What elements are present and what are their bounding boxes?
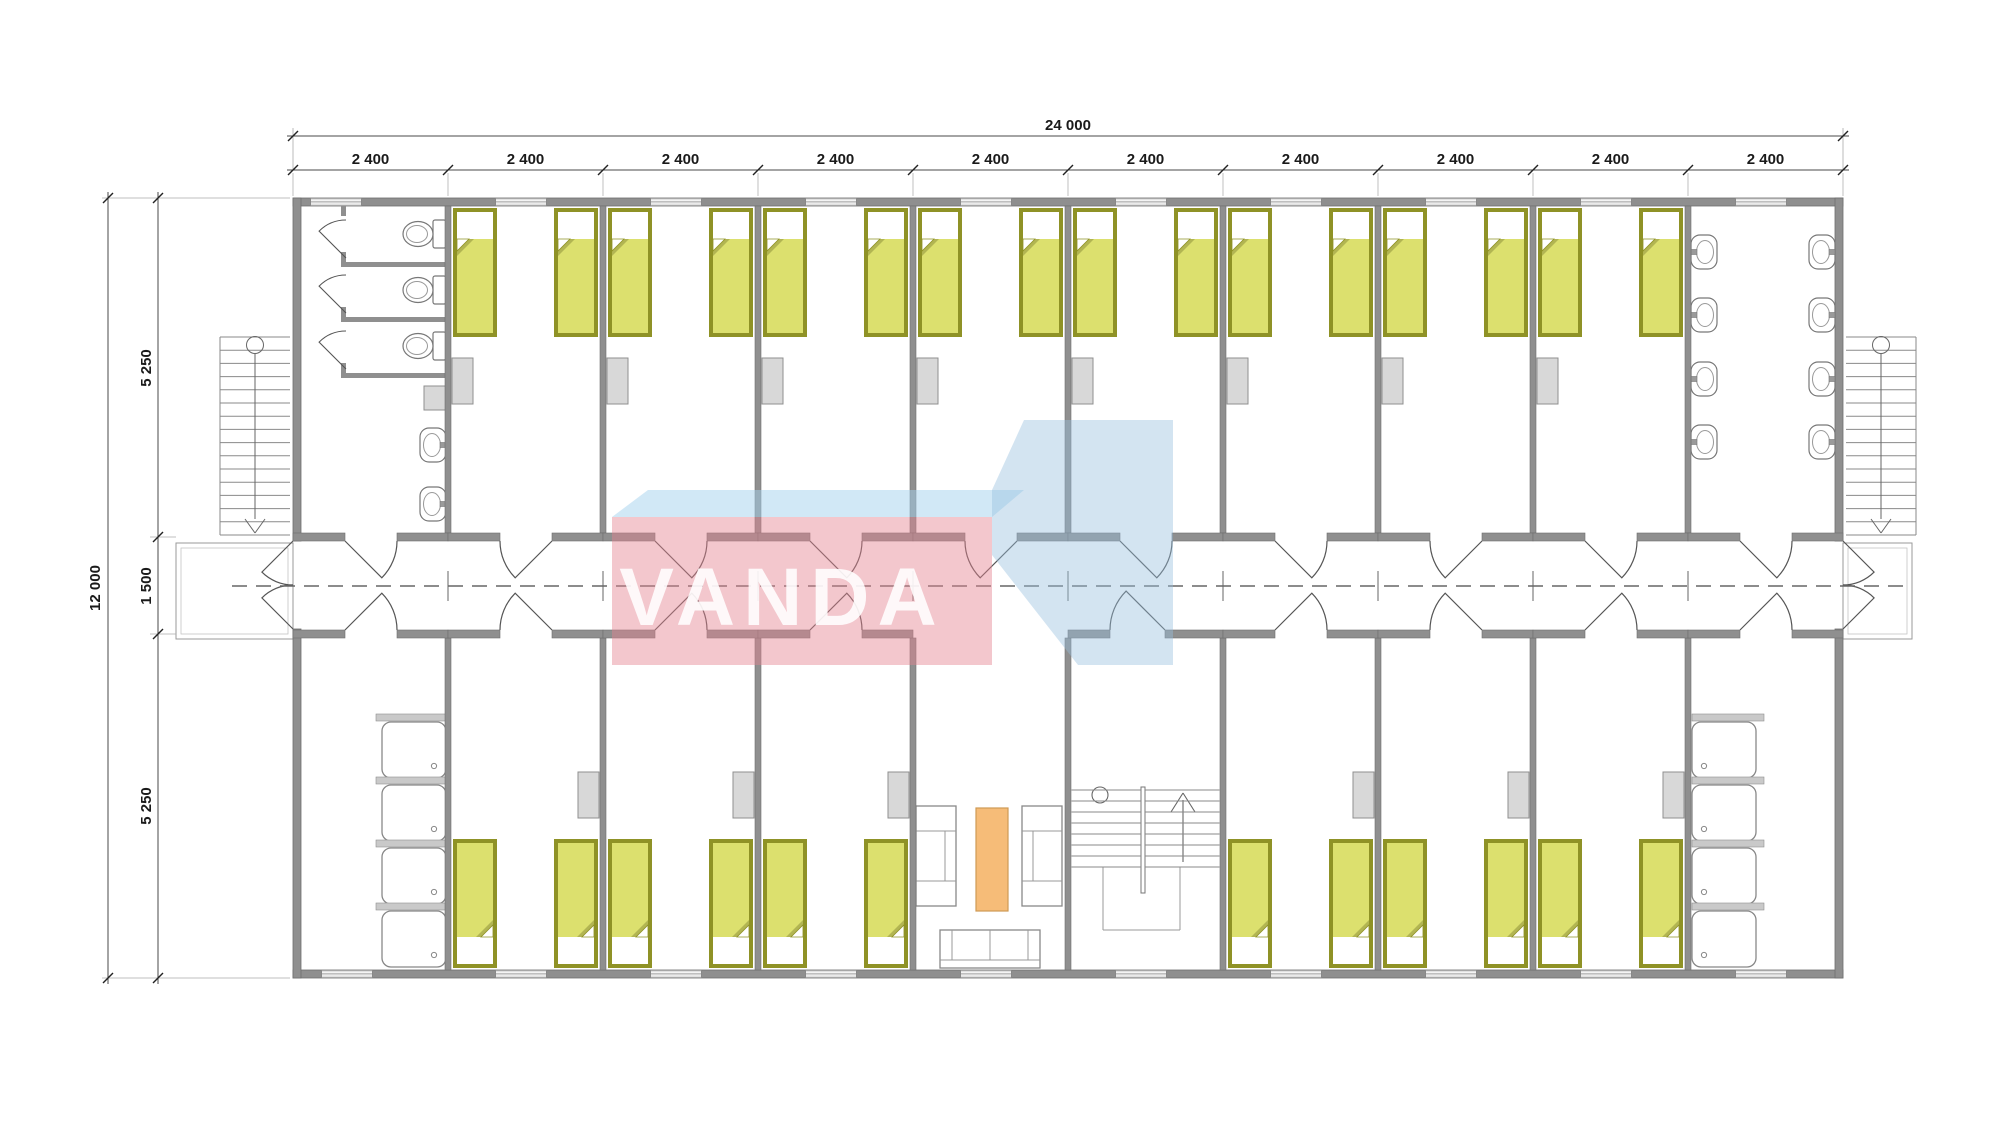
shower-ledge (376, 903, 448, 910)
bed-icon (554, 839, 598, 968)
sink-icon (1809, 298, 1835, 332)
bed-icon (1484, 839, 1528, 968)
window-icon (1580, 970, 1632, 978)
wardrobe-icon (733, 772, 754, 818)
partition-wall (910, 206, 916, 533)
corridor-wall (293, 533, 345, 541)
corridor-wall (1688, 630, 1740, 638)
bed-icon (1073, 208, 1117, 337)
sink-icon (1691, 235, 1717, 269)
window-icon (1270, 970, 1322, 978)
corridor-wall (397, 630, 448, 638)
wardrobe-icon (607, 358, 628, 404)
corridor-wall (1482, 533, 1533, 541)
door-icon (1430, 593, 1482, 630)
dim-module-width: 2 400 (507, 151, 545, 168)
wardrobe-icon (452, 358, 473, 404)
window-icon (1425, 198, 1477, 206)
corridor-wall (1223, 533, 1275, 541)
wardrobe-icon (1663, 772, 1684, 818)
bed-icon (1383, 208, 1427, 337)
dim-lower-depth: 5 250 (138, 787, 155, 825)
window-icon (1115, 970, 1167, 978)
bed-icon (1174, 208, 1218, 337)
corridor-wall (1688, 533, 1740, 541)
sink-icon (1691, 362, 1717, 396)
shower-icon (1692, 848, 1756, 904)
window-icon (805, 970, 857, 978)
dim-module-width: 2 400 (1437, 151, 1475, 168)
shower-icon (382, 848, 446, 904)
partition-wall (1685, 206, 1691, 533)
bed-icon (864, 208, 908, 337)
dim-corridor-width: 1 500 (138, 567, 155, 605)
dim-module-width: 2 400 (817, 151, 855, 168)
sink-icon (1809, 235, 1835, 269)
duct-cabinet (424, 386, 446, 410)
wardrobe-icon (1227, 358, 1248, 404)
partition-wall (600, 206, 606, 533)
partition-wall (755, 206, 761, 533)
corridor-wall (293, 630, 345, 638)
dim-module-width: 2 400 (1592, 151, 1630, 168)
corridor-wall (1378, 630, 1430, 638)
wc-room (319, 206, 448, 521)
bed-icon (1329, 839, 1373, 968)
stairs-icon (1846, 337, 1916, 536)
bed-icon (1538, 208, 1582, 337)
shower-icon (1692, 785, 1756, 841)
door-icon (345, 593, 397, 630)
bed-icon (1639, 208, 1683, 337)
wardrobe-icon (888, 772, 909, 818)
corridor-wall (1172, 533, 1223, 541)
partition-wall (1530, 638, 1536, 970)
stairs-icon (220, 337, 290, 536)
bed-icon (453, 208, 497, 337)
window-icon (310, 198, 362, 206)
wardrobe-icon (917, 358, 938, 404)
corridor-wall (552, 533, 603, 541)
bed-icon (918, 208, 962, 337)
door-icon (345, 541, 397, 578)
window-icon (1735, 970, 1787, 978)
shower-icon (382, 785, 446, 841)
corridor-wall (1637, 533, 1688, 541)
dim-module-width: 2 400 (1127, 151, 1165, 168)
corridor-wall (552, 630, 603, 638)
bed-icon (554, 208, 598, 337)
coffee-table-icon (976, 808, 1008, 911)
window-icon (650, 198, 702, 206)
dim-total-height: 12 000 (87, 565, 104, 611)
partition-wall (1375, 206, 1381, 533)
door-icon (1585, 593, 1637, 630)
bed-icon (763, 839, 807, 968)
wardrobe-icon (578, 772, 599, 818)
corridor-wall (1327, 533, 1378, 541)
partition-wall (1685, 638, 1691, 970)
corridor-wall (397, 533, 448, 541)
wardrobe-icon (1508, 772, 1529, 818)
floor-plan-canvas: VANDA 24 000 12 000 5 250 1 500 5 250 2 … (0, 0, 2000, 1131)
dim-module-width: 2 400 (662, 151, 700, 168)
floor-plan-drawing: VANDA 24 000 12 000 5 250 1 500 5 250 2 … (0, 0, 2000, 1131)
bed-icon (709, 839, 753, 968)
lounge-area (916, 806, 1062, 968)
bed-icon (1329, 208, 1373, 337)
bed-icon (1228, 208, 1272, 337)
bed-icon (1383, 839, 1427, 968)
sink-icon (1691, 425, 1717, 459)
window-icon (495, 970, 547, 978)
shower-ledge (1692, 903, 1764, 910)
bed-icon (608, 839, 652, 968)
partition-wall (445, 206, 451, 533)
wardrobe-icon (1353, 772, 1374, 818)
corridor-wall (1637, 630, 1688, 638)
corridor-wall (1378, 533, 1430, 541)
corridor-wall (448, 533, 500, 541)
stair-start-circle (1873, 337, 1890, 354)
window-icon (1115, 198, 1167, 206)
door-icon (1740, 593, 1792, 630)
window-icon (495, 198, 547, 206)
corridor-wall (1533, 630, 1585, 638)
partition-wall (755, 638, 761, 970)
shower-icon (1692, 722, 1756, 778)
partition-wall (1220, 206, 1226, 533)
door-icon (500, 541, 552, 578)
door-icon (1275, 593, 1327, 630)
stair-arrow (245, 519, 255, 533)
corridor-wall (1792, 630, 1843, 638)
window-icon (1270, 198, 1322, 206)
wardrobe-icon (1382, 358, 1403, 404)
partition-wall (1065, 638, 1071, 970)
bed-icon (864, 839, 908, 968)
corridor-wall (1165, 630, 1223, 638)
door-icon (1430, 541, 1482, 578)
bed-icon (453, 839, 497, 968)
wardrobe-icon (1072, 358, 1093, 404)
sink-icon (1691, 298, 1717, 332)
shower-icon (382, 911, 446, 967)
wardrobe-icon (762, 358, 783, 404)
door-icon (500, 593, 552, 630)
partition-wall (445, 638, 451, 970)
shower-icon (382, 722, 446, 778)
washroom (1691, 235, 1835, 459)
shower-ledge (1692, 840, 1764, 847)
window-icon (805, 198, 857, 206)
partition-wall (1530, 206, 1536, 533)
corridor-wall (1533, 533, 1585, 541)
bed-icon (1538, 839, 1582, 968)
dim-module-width: 2 400 (1747, 151, 1785, 168)
window-icon (1735, 198, 1787, 206)
door-icon (1275, 541, 1327, 578)
dim-total-width: 24 000 (1045, 117, 1091, 134)
corridor-wall (1327, 630, 1378, 638)
bed-icon (1019, 208, 1063, 337)
vanda-watermark: VANDA (612, 420, 1173, 665)
bed-icon (1484, 208, 1528, 337)
corridor-wall (448, 630, 500, 638)
corridor-wall (1223, 630, 1275, 638)
bed-icon (1639, 839, 1683, 968)
shower-ledge (1692, 777, 1764, 784)
window-icon (321, 970, 373, 978)
stair-arrow (1871, 519, 1881, 533)
sink-icon (1809, 362, 1835, 396)
corridor-wall (1792, 533, 1843, 541)
dim-module-width: 2 400 (352, 151, 390, 168)
window-icon (1425, 970, 1477, 978)
stair-arrow (255, 519, 265, 533)
shower-ledge (376, 777, 448, 784)
stair-arrow (1881, 519, 1891, 533)
door-icon (1585, 541, 1637, 578)
window-icon (960, 198, 1012, 206)
stair-start-circle (247, 337, 264, 354)
dim-module-width: 2 400 (972, 151, 1010, 168)
watermark-text: VANDA (619, 552, 944, 643)
window-icon (650, 970, 702, 978)
wardrobe-icon (1537, 358, 1558, 404)
shower-icon (1692, 911, 1756, 967)
partition-wall (600, 638, 606, 970)
door-icon (1740, 541, 1792, 578)
corridor-wall (1482, 630, 1533, 638)
partition-wall (1375, 638, 1381, 970)
shower-ledge (376, 840, 448, 847)
sink-icon (1809, 425, 1835, 459)
shower-ledge (1692, 714, 1764, 721)
window-icon (1580, 198, 1632, 206)
partition-wall (910, 638, 916, 970)
shower-ledge (376, 714, 448, 721)
bed-icon (608, 208, 652, 337)
dim-module-width: 2 400 (1282, 151, 1320, 168)
bed-icon (1228, 839, 1272, 968)
bed-icon (763, 208, 807, 337)
dim-upper-depth: 5 250 (138, 349, 155, 387)
window-icon (960, 970, 1012, 978)
bed-icon (709, 208, 753, 337)
partition-wall (1220, 638, 1226, 970)
